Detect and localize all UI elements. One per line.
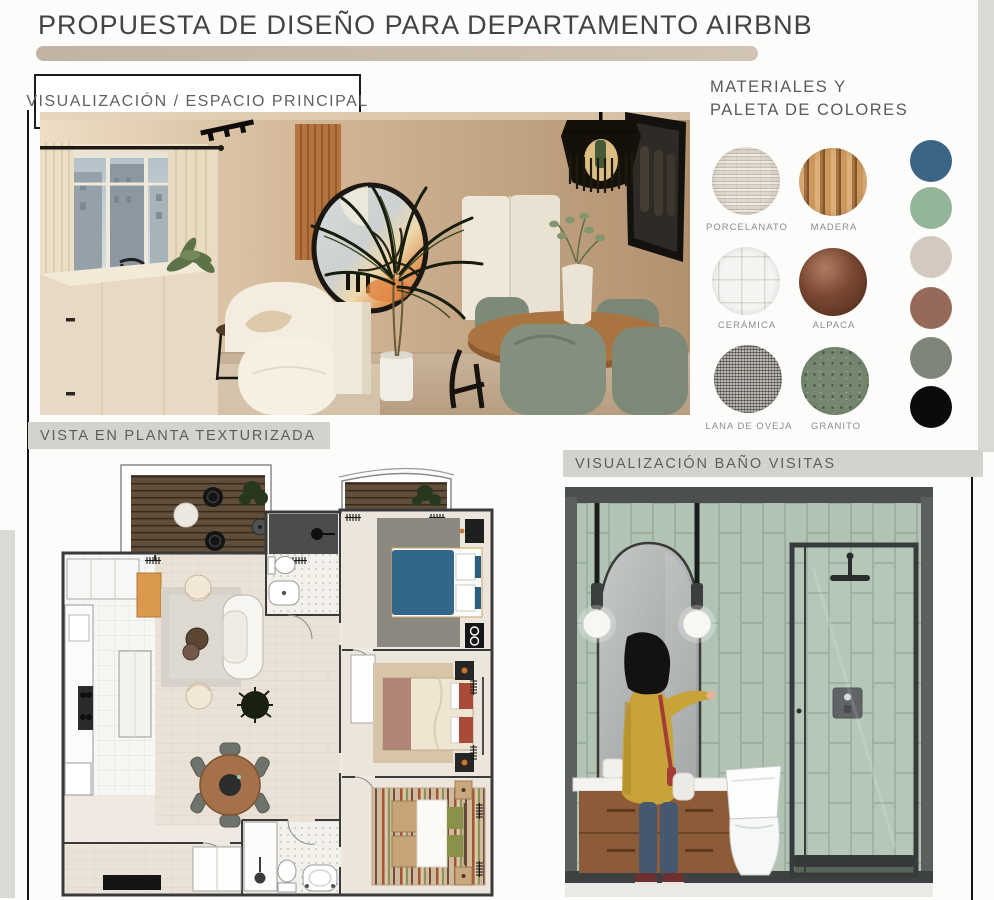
swatch-alpaca bbox=[799, 248, 867, 316]
swatch-label-ceramica: CERÁMICA bbox=[701, 320, 793, 331]
right-vertical-rule bbox=[971, 452, 973, 900]
swatch-granito bbox=[801, 347, 869, 415]
guest-bathroom-label-bar: VISUALIZACIÓN BAÑO VISITAS bbox=[563, 450, 983, 477]
swatch-label-lana: LANA DE OVEJA bbox=[703, 421, 795, 432]
kitchen-island bbox=[40, 260, 218, 415]
pendant-lamp bbox=[561, 112, 641, 193]
palette-color-terracotta bbox=[910, 287, 952, 329]
palette-color-sage bbox=[910, 187, 952, 229]
main-visualization-image bbox=[40, 112, 690, 415]
swatch-madera bbox=[799, 148, 867, 216]
floor-plan-label: VISTA EN PLANTA TEXTURIZADA bbox=[40, 428, 316, 444]
palette-color-olive bbox=[910, 337, 952, 379]
guest-bathroom-label: VISUALIZACIÓN BAÑO VISITAS bbox=[575, 456, 836, 472]
left-edge-strip bbox=[0, 530, 15, 898]
floor-plan-label-bar: VISTA EN PLANTA TEXTURIZADA bbox=[28, 422, 330, 449]
design-board: PROPUESTA DE DISEÑO PARA DEPARTAMENTO AI… bbox=[0, 0, 994, 900]
floor-plan-image bbox=[55, 455, 520, 900]
swatch-porcelanato bbox=[712, 147, 780, 215]
page-title: PROPUESTA DE DISEÑO PARA DEPARTAMENTO AI… bbox=[38, 10, 798, 41]
materials-heading: MATERIALES Y PALETA DE COLORES bbox=[710, 76, 940, 122]
round-mirror bbox=[314, 185, 426, 311]
guest-bathroom-image bbox=[565, 487, 933, 897]
materials-heading-line2: PALETA DE COLORES bbox=[710, 99, 940, 122]
left-vertical-rule bbox=[27, 110, 29, 900]
right-edge-strip bbox=[978, 0, 994, 452]
swatch-lana-de-oveja bbox=[714, 345, 782, 413]
swatch-label-alpaca: ALPACA bbox=[788, 320, 880, 331]
swatch-ceramica bbox=[712, 247, 780, 315]
swatch-label-granito: GRANITO bbox=[790, 421, 882, 432]
title-underline-bar bbox=[36, 46, 758, 61]
palette-color-black bbox=[910, 386, 952, 428]
main-visualization-label: VISUALIZACIÓN / ESPACIO PRINCIPAL bbox=[26, 93, 368, 111]
swatch-label-madera: MADERA bbox=[788, 222, 880, 233]
swatch-label-porcelanato: PORCELANATO bbox=[701, 222, 793, 233]
materials-heading-line1: MATERIALES Y bbox=[710, 76, 940, 99]
palette-color-blue bbox=[910, 140, 952, 182]
palette-color-greige bbox=[910, 236, 952, 278]
